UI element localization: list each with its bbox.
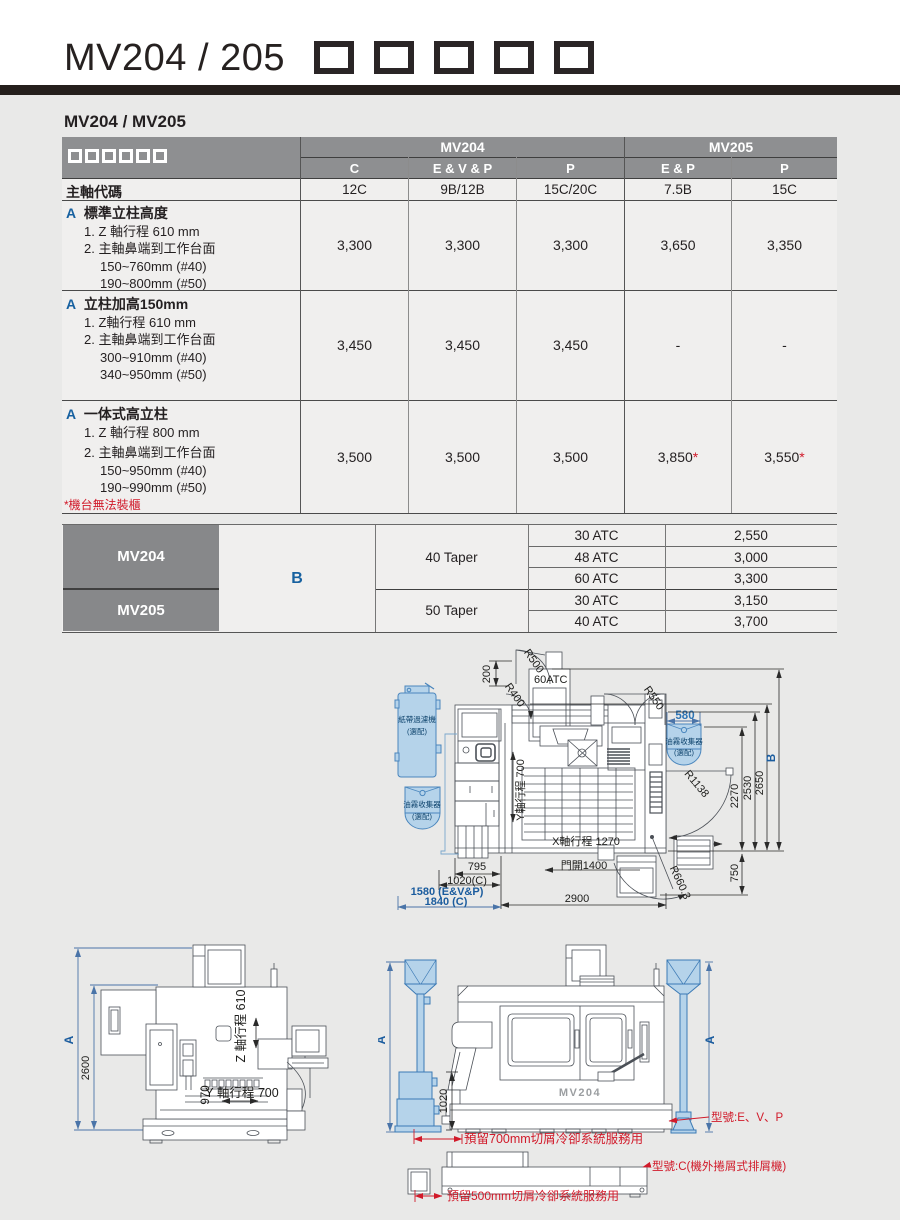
- svg-text:型號:E、V、P: 型號:E、V、P: [711, 1110, 784, 1124]
- svg-text:油霧收集器: 油霧收集器: [403, 799, 441, 809]
- svg-text:R1138: R1138: [682, 768, 712, 800]
- svg-text:Y軸行程 700: Y軸行程 700: [513, 759, 527, 821]
- svg-text:R500: R500: [521, 647, 546, 675]
- svg-text:A: A: [62, 1035, 76, 1044]
- svg-text:(選配): (選配): [674, 747, 694, 757]
- svg-text:Y 軸行程 700: Y 軸行程 700: [205, 1085, 278, 1100]
- svg-text:(選配): (選配): [412, 811, 432, 821]
- svg-text:1840 (C): 1840 (C): [425, 896, 468, 908]
- svg-text:1020: 1020: [438, 1089, 450, 1113]
- svg-text:紙帶過濾機: 紙帶過濾機: [398, 714, 436, 724]
- svg-text:2530: 2530: [742, 776, 754, 800]
- svg-text:B: B: [766, 754, 778, 762]
- svg-text:(選配): (選配): [407, 726, 427, 736]
- svg-text:750: 750: [729, 864, 741, 882]
- svg-text:2600: 2600: [80, 1056, 92, 1080]
- svg-text:2900: 2900: [565, 893, 589, 905]
- svg-text:60ATC: 60ATC: [534, 674, 567, 686]
- svg-text:2650: 2650: [754, 771, 766, 795]
- svg-text:預留500mm切屑冷卻系統服務用: 預留500mm切屑冷卻系統服務用: [447, 1189, 619, 1203]
- svg-text:A: A: [378, 1035, 388, 1044]
- svg-text:型號:C(機外捲屑式排屑機): 型號:C(機外捲屑式排屑機): [652, 1159, 786, 1173]
- svg-text:200: 200: [481, 665, 493, 683]
- svg-text:795: 795: [468, 861, 486, 873]
- svg-text:2270: 2270: [729, 784, 741, 808]
- svg-text:MV204: MV204: [559, 1087, 601, 1099]
- svg-text:油霧收集器: 油霧收集器: [665, 736, 703, 746]
- svg-text:X軸行程 1270: X軸行程 1270: [552, 834, 620, 848]
- svg-text:A: A: [703, 1035, 717, 1044]
- svg-text:Z 軸行程 610: Z 軸行程 610: [233, 989, 248, 1062]
- svg-text:預留700mm切屑冷卻系統服務用: 預留700mm切屑冷卻系統服務用: [464, 1132, 643, 1146]
